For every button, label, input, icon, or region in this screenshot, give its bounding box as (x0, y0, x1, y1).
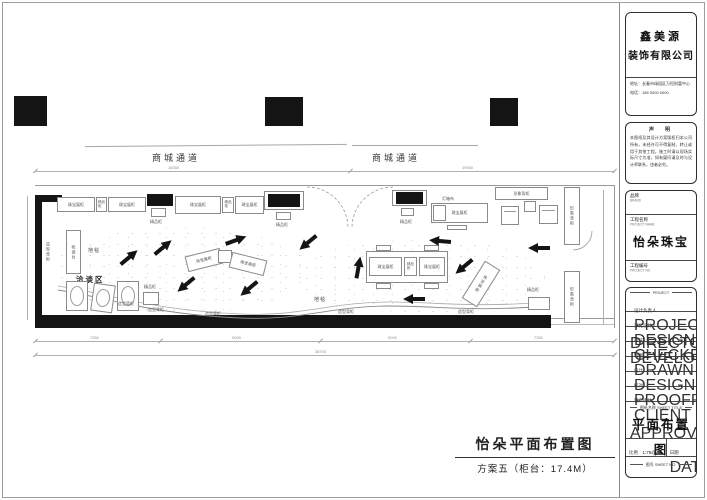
company-name-line1: 鑫美源 (640, 28, 682, 44)
jewelry-counter: 珠宝展柜 (108, 197, 146, 212)
sofa-back-line (504, 211, 516, 212)
project-name-value: 怡朵珠宝 (630, 233, 692, 250)
jewelry-counter: 珠宝展柜 (57, 197, 95, 212)
counter-label: 精品柜 (407, 263, 414, 271)
date-field: 日期 DATE (667, 439, 696, 456)
boutique-label: 精品柜 (144, 284, 156, 290)
table-top (95, 288, 111, 308)
sheet-title-label: 图纸名称 SHEET TITLE (640, 405, 682, 411)
brand-field: 品牌 BRAND (626, 191, 696, 215)
company-phone: 电话：186 0000 0000 (630, 90, 692, 96)
shaped-back-label: 造型背柜 (45, 242, 51, 262)
image-back-counter: 形象背柜 (495, 187, 548, 200)
counter-label: 形象背柜 (514, 191, 530, 197)
counter-label: 珠宝展柜 (119, 202, 135, 208)
scale-label: 比例 (629, 450, 638, 455)
cashier-counter: 收银台 (66, 230, 81, 274)
divider (672, 292, 692, 293)
display-table (143, 292, 159, 305)
flow-arrow-icon (402, 294, 425, 304)
counter-label: 珠宝展柜 (68, 202, 84, 208)
structural-column (396, 192, 423, 204)
company-box: 鑫美源 装饰有限公司 地址：长春市绿园区万恒财富中心 电话：186 0000 0… (625, 12, 697, 116)
counter-stand (376, 283, 391, 289)
boutique-counter (433, 205, 446, 221)
divider (630, 292, 650, 293)
jewelry-counter: 珠宝展柜 (235, 196, 264, 214)
dimension-value: 9000 (388, 335, 397, 340)
project-number-field: 工程编号 PROJECT NO. (626, 261, 696, 281)
signoff-row: 设计负责人PROJECT DIRECTOR (626, 297, 696, 312)
counter-label: 珠宝展柜 (424, 264, 440, 270)
project-number-sublabel: PROJECT NO. (630, 269, 686, 273)
boutique-label: 精品柜 (150, 219, 162, 225)
company-name: 鑫美源 装饰有限公司 (626, 13, 696, 77)
jewelry-counter: 珠宝展柜 (369, 257, 402, 276)
structural-column (147, 194, 173, 206)
divider (685, 407, 692, 408)
dimension-value: 38700 (315, 349, 326, 354)
shaped-back-label: 造型背柜 (458, 309, 474, 315)
drawing-title-block: 怡朵平面布置图 方案五（柜台：17.4M） (455, 434, 615, 475)
project-name-sublabel: PROJECT NAME (630, 223, 686, 227)
notice-body: 本图纸及其设计方案版权归本公司所有，未经许可不得复制、转让或用于其他工程。施工时… (626, 133, 696, 171)
counter-label: 珠宝展柜 (240, 259, 257, 269)
column-stand (276, 212, 291, 220)
signoff-box: PROJECT 设计负责人PROJECT DIRECTOR 深化设计人DESIG… (625, 287, 697, 478)
drawing-title: 怡朵平面布置图 (455, 434, 615, 458)
counter-label: 珠宝展柜 (473, 274, 489, 294)
counter-stand (376, 245, 391, 251)
notice-box: 声 明 本图纸及其设计方案版权归本公司所有，未经许可不得复制、转让或用于其他工程… (625, 122, 697, 184)
boutique-label: 精品柜 (276, 222, 288, 228)
boutique-label: 精品柜 (400, 219, 412, 225)
divider (679, 464, 692, 465)
sofa-back-line (542, 210, 555, 211)
image-back-counter: 形象背柜 (564, 187, 580, 245)
dimension-value: 7350 (90, 335, 99, 340)
structural-column (268, 194, 300, 207)
side-table (524, 201, 536, 212)
shaped-back-label: 造型背柜 (205, 311, 221, 317)
drawing-sheet: 商城通道 商城通道 18350 19050 珠宝展柜 精品柜 珠宝展柜 精品柜 … (0, 0, 707, 500)
carpet-label: 地毯 (314, 296, 326, 303)
boutique-counter: 精品柜 (404, 257, 417, 276)
column-stand (151, 208, 166, 217)
counter-stand (424, 245, 439, 251)
shaped-back-label: 造型背柜 (148, 307, 164, 313)
signoff-header-label: PROJECT (653, 291, 669, 295)
signoff-header: PROJECT (626, 288, 696, 297)
date-label: 日期 (670, 450, 679, 455)
counter-label: 珠宝展柜 (378, 264, 394, 270)
counter-label: 珠宝展柜 (452, 210, 468, 216)
lightbox-label: 灯箱布 (442, 196, 454, 202)
flow-arrow-icon (428, 235, 452, 247)
scale-value: 1:75@A3 (642, 450, 661, 455)
shaped-back-label: 造型背柜 (118, 301, 134, 307)
counter-label: 精品柜 (225, 201, 232, 209)
scale-date-row: 比例 1:75@A3 日期 DATE (626, 439, 696, 457)
divider (630, 464, 643, 465)
dimension-value: 7350 (534, 335, 543, 340)
counter-label: 珠宝展柜 (190, 202, 206, 208)
counter-stand (447, 225, 467, 230)
negotiation-table (66, 281, 88, 311)
shaped-back-label: 造型背柜 (338, 309, 354, 315)
sofa (539, 205, 558, 224)
counter-label: 形象背柜 (569, 287, 575, 307)
project-name-field: 工程名称 PROJECT NAME 怡朵珠宝 (626, 215, 696, 261)
drawing-subtitle: 方案五（柜台：17.4M） (455, 461, 615, 475)
brand-sublabel: BRAND (630, 199, 686, 203)
notice-heading: 声 明 (626, 123, 696, 133)
image-back-counter: 形象背柜 (564, 271, 580, 323)
table-top (70, 286, 84, 306)
scale-field: 比例 1:75@A3 (626, 439, 667, 456)
boutique-counter: 精品柜 (222, 197, 234, 213)
counter-label: 精品柜 (98, 201, 105, 209)
company-name-line2: 装饰有限公司 (628, 47, 694, 62)
sofa (501, 206, 519, 225)
boutique-label: 精品柜 (527, 287, 539, 293)
dimension-line (35, 341, 614, 342)
counter-label: 形象背柜 (569, 206, 575, 226)
company-contact: 地址：长春市绿园区万恒财富中心 电话：186 0000 0000 (626, 77, 696, 96)
signoff-label: 客户确认 (630, 396, 656, 405)
counter-label: 珠宝展柜 (196, 255, 213, 265)
dimension-value: 9000 (232, 335, 241, 340)
jewelry-counter: 珠宝展柜 (175, 196, 221, 214)
column-stand (401, 208, 414, 216)
flow-arrow-icon (527, 243, 550, 253)
jewelry-counter: 珠宝展柜 (419, 257, 445, 276)
counter-label: 珠宝展柜 (242, 202, 258, 208)
sheet-title: 平面布置图 (626, 413, 696, 439)
counter-stand (424, 283, 439, 289)
project-box: 品牌 BRAND 工程名称 PROJECT NAME 怡朵珠宝 工程编号 PRO… (625, 190, 697, 282)
carpet-label: 地毯 (88, 247, 100, 254)
display-table (528, 297, 550, 310)
company-address: 地址：长春市绿园区万恒财富中心 (630, 81, 692, 87)
boutique-counter: 精品柜 (96, 197, 107, 212)
counter-label: 收银台 (71, 245, 77, 260)
negotiation-table (90, 283, 116, 314)
divider (630, 407, 637, 408)
dimension-line (35, 355, 614, 356)
sheet-number-label: 图号 SHEET NO. (646, 462, 677, 468)
